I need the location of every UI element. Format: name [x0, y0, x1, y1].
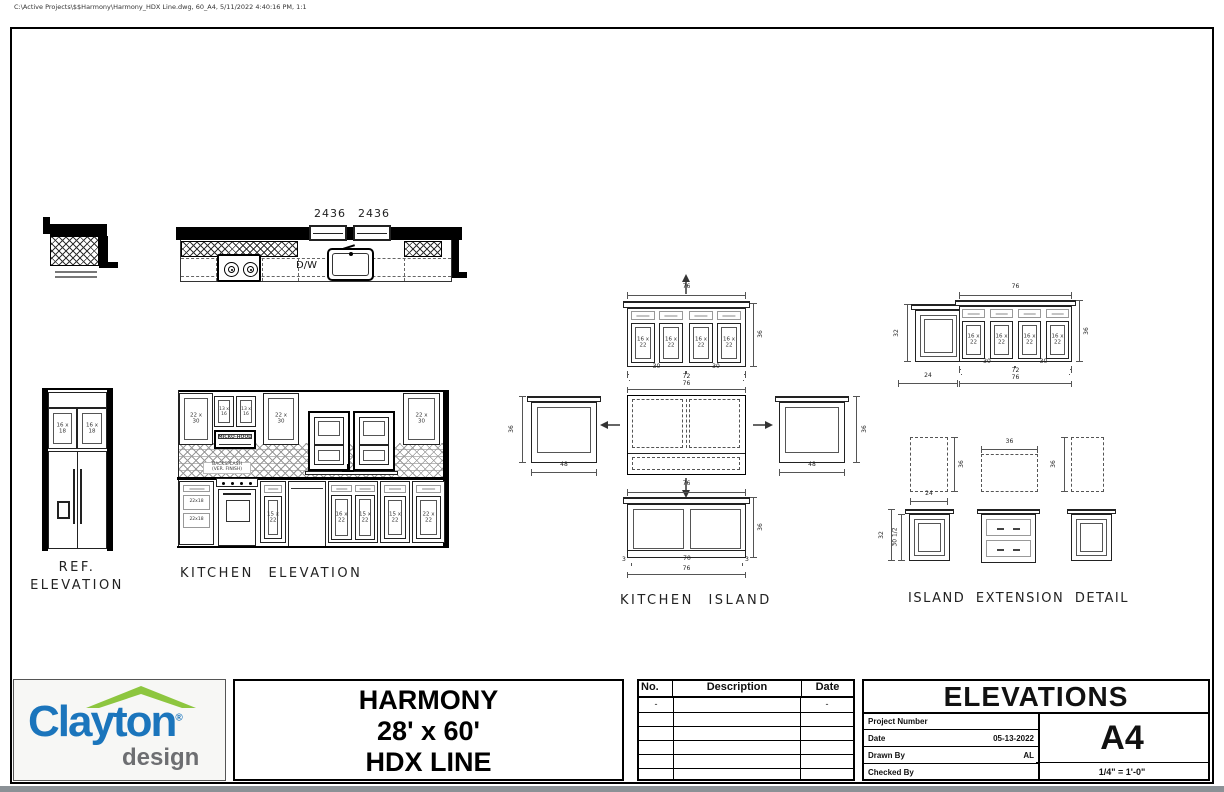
- refrigerator-plan-hatch: [50, 236, 99, 266]
- drawer-size-label: 22x18: [184, 518, 209, 523]
- island-left-side-elevation: [531, 402, 597, 463]
- dim-line: [898, 380, 958, 387]
- kitchen-elevation-title: KITCHEN ELEVATION: [180, 566, 362, 581]
- window-plan: [309, 225, 347, 241]
- faucet: [347, 464, 349, 471]
- dim-label: 76: [959, 375, 1072, 381]
- dim-label: 76: [627, 481, 746, 487]
- checked-by-row: Checked By: [864, 764, 1038, 781]
- window-size-label: 2436: [311, 211, 349, 217]
- cabinet-size-label: 16 x 22: [335, 511, 348, 524]
- dim-label: 76: [627, 566, 746, 572]
- drawer-size-label: 22x18: [184, 500, 209, 505]
- microwave-hood: MICRO-HOOD: [214, 430, 256, 449]
- drawn-by-row: Drawn By AL: [864, 747, 1038, 764]
- cabinet-divider-dashed: [262, 258, 263, 281]
- dim-line: [627, 571, 746, 578]
- kitchen-island-title: KITCHEN ISLAND: [620, 593, 772, 608]
- dim-label: 24: [898, 373, 958, 379]
- dim-line: [910, 498, 948, 505]
- cabinet-size-label: 16 x 22: [695, 337, 708, 350]
- wall-cabinet: 22 x 30: [263, 393, 299, 445]
- checked-by-label: Checked By: [868, 768, 914, 777]
- sheet-number: A4: [1036, 714, 1208, 763]
- micro-hood-label: MICRO-HOOD: [216, 436, 254, 441]
- dim-label: 30 1/2: [893, 527, 899, 546]
- oven-front: [218, 489, 256, 546]
- cabinet-size-label: 16 x 22: [1051, 334, 1064, 347]
- cabinet-hatch-plan: [404, 241, 442, 257]
- island-countertop: [623, 301, 750, 308]
- window-plan: [353, 225, 391, 241]
- extension-plan-dashed: [981, 454, 1038, 492]
- registered-mark: ®: [175, 712, 182, 723]
- cabinet-size-label: 15 x 22: [359, 511, 372, 524]
- dim-line: [531, 469, 597, 476]
- ref-elevation-title-line2: ELEVATION: [18, 578, 136, 593]
- cabinet-size-label: 16 x 22: [1023, 334, 1036, 347]
- cabinet-door: 16 x 22: [990, 321, 1013, 359]
- wall-cabinet: 16 x 18: [48, 408, 77, 449]
- page-bottom-strip: [0, 786, 1224, 792]
- cabinet-door: 16 x 22: [689, 323, 713, 363]
- cabinet-size-label: 16 x 18: [56, 422, 69, 435]
- dim-label: 36: [758, 330, 764, 338]
- cabinet-door: 16 x 22: [659, 323, 683, 363]
- date-row: Date 05-13-2022: [864, 730, 1038, 747]
- dim-label: 36: [758, 523, 764, 531]
- revision-col-date: Date: [801, 681, 853, 696]
- wall-section: [107, 388, 113, 551]
- dim-line: [959, 380, 1072, 387]
- cabinet-size-label: 22 x 30: [415, 413, 428, 426]
- wall-cabinet: 22 x 30: [179, 393, 213, 445]
- base-cabinet: 15 x 22: [260, 481, 286, 543]
- dim-label: 36: [862, 425, 868, 433]
- dim-line: [519, 396, 526, 463]
- dim-label: 30: [1015, 359, 1072, 365]
- dim-label: 70: [631, 556, 743, 562]
- cabinet-size-label: 16 x 22: [967, 334, 980, 347]
- revision-row1-date: -: [801, 699, 853, 709]
- drawer-front: [659, 311, 683, 320]
- dishwasher-label: D/W: [296, 260, 317, 271]
- dim-label: 30: [627, 364, 686, 370]
- drawer-front: [990, 309, 1013, 318]
- dim-label: 36: [1051, 460, 1057, 468]
- ceiling-line: [48, 388, 107, 390]
- cooktop: [216, 478, 258, 487]
- cabinet-size-label: 13 x 16: [219, 406, 230, 416]
- revision-row1-no: -: [639, 699, 673, 709]
- wall-segment: [43, 217, 50, 234]
- arrow-right-icon: [753, 419, 773, 431]
- door-swing-line: [55, 271, 97, 273]
- drawer-front: [962, 309, 985, 318]
- drawer-front: [331, 485, 352, 492]
- model-size: 28' x 60': [235, 716, 622, 747]
- cabinet-size-label: 16 x 22: [637, 337, 650, 350]
- drawn-by-label: Drawn By: [868, 751, 905, 763]
- backsplash-note-line2: (VER. FINISH): [212, 467, 242, 472]
- drawer-front: [1018, 309, 1041, 318]
- drawer-front: [1046, 309, 1069, 318]
- dim-label: 36: [509, 425, 515, 433]
- arrow-up-icon: [680, 274, 692, 294]
- dim-label: 72: [629, 374, 744, 380]
- cabinet-door: 16 x 22: [962, 321, 985, 359]
- cabinet-size-label: 16 x 22: [723, 337, 736, 350]
- dim-label: 48: [531, 462, 597, 468]
- soffit: [48, 392, 107, 408]
- dim-label: 32: [879, 531, 885, 539]
- dim-line: [627, 386, 746, 393]
- cabinet-size-label: 13 x 16: [241, 406, 252, 416]
- cabinet-size-label: 22 x 30: [275, 413, 288, 426]
- wall-cabinet: 13 x 16: [236, 396, 256, 427]
- table-rule: [639, 740, 853, 741]
- cabinet-divider-dashed: [404, 258, 405, 281]
- cabinet-size-label: 16 x 18: [86, 422, 99, 435]
- table-rule: [639, 712, 853, 713]
- door-swing-line: [55, 276, 97, 278]
- extension-plan-dashed: [1071, 437, 1104, 492]
- table-rule: [639, 768, 853, 769]
- logo-box: Clayton® design: [13, 679, 226, 781]
- dim-line: [853, 396, 860, 463]
- cabinet-size-label: 15 x 22: [389, 511, 402, 524]
- dim-label: 30: [959, 359, 1015, 365]
- cabinet-door: 16 x 22: [631, 323, 655, 363]
- end-cabinet-elevation: [915, 310, 962, 362]
- table-rule: [673, 698, 674, 779]
- drawer-front: [631, 311, 655, 320]
- window: [308, 411, 350, 471]
- dim-label: 76: [627, 381, 746, 387]
- island-back-elevation: [627, 504, 746, 558]
- model-line: HDX LINE: [235, 747, 622, 778]
- cabinet-door: 16 x 22: [331, 495, 352, 540]
- sheet-info-block: ELEVATIONS Project Number Date 05-13-202…: [862, 679, 1210, 781]
- cabinet-door: 16 x 22: [1018, 321, 1041, 359]
- ceiling-line: [178, 390, 449, 392]
- model-name: HARMONY: [235, 685, 622, 716]
- ref-elevation-title-line1: REF.: [40, 560, 114, 575]
- dim-label: 30: [686, 364, 746, 370]
- dim-label: 36: [981, 439, 1038, 445]
- date-value: 05-13-2022: [993, 734, 1034, 746]
- extension-door-cabinet: [1071, 514, 1112, 561]
- dim-label: 32: [894, 329, 900, 337]
- model-title-box: HARMONY 28' x 60' HDX LINE: [233, 679, 624, 781]
- cabinet-door: 16 x 22: [1046, 321, 1069, 359]
- extension-door-cabinet: [909, 514, 950, 561]
- cabinet-size-label: 16 x 22: [995, 334, 1008, 347]
- drawer-base-cabinet: 22x18 22x18: [179, 481, 214, 545]
- window-size-label: 2436: [355, 211, 393, 217]
- island-extension-title: ISLAND EXTENSION DETAIL: [908, 591, 1129, 606]
- cabinet-size-label: 22 x 22: [422, 511, 435, 524]
- arrow-left-icon: [600, 419, 620, 431]
- dim-line: [904, 304, 911, 362]
- dim-line: [959, 292, 1072, 299]
- dim-label: 72: [961, 368, 1070, 374]
- backsplash-note: BACKSPLASH (VER. FINISH): [203, 462, 251, 474]
- drawer-front: [355, 485, 375, 492]
- island-right-side-elevation: [779, 402, 845, 463]
- extension-drawer-cabinet: [981, 514, 1036, 563]
- island-plan-view: [627, 395, 746, 475]
- revision-col-no: No.: [639, 681, 673, 696]
- clayton-logo-text: Clayton®: [28, 700, 183, 744]
- wall-segment: [50, 224, 107, 236]
- dim-label: 36: [1084, 327, 1090, 335]
- date-label: Date: [868, 734, 885, 746]
- drawn-by-value: AL: [1023, 751, 1034, 763]
- table-rule: [639, 754, 853, 755]
- design-logo-text: design: [122, 746, 199, 770]
- cabinet-size-label: 15 x 22: [267, 511, 280, 524]
- project-number-label: Project Number: [868, 717, 928, 726]
- revision-col-description: Description: [673, 681, 801, 696]
- sheet-scale: 1/4" = 1'-0": [1036, 763, 1208, 781]
- cabinet-door: 16 x 22: [717, 323, 741, 363]
- dim-line: [1061, 437, 1068, 492]
- dim-line: [627, 489, 746, 496]
- dim-label: 76: [959, 284, 1072, 290]
- dim-label: 48: [779, 462, 845, 468]
- dim-label: 3: [745, 557, 749, 563]
- dishwasher-elevation: [288, 481, 326, 547]
- island-countertop: [623, 497, 750, 504]
- wall-cabinet: 22 x 30: [403, 393, 440, 445]
- dim-line: [981, 446, 1038, 453]
- cabinet-size-label: 22 x 30: [190, 413, 203, 426]
- dim-label: 24: [910, 491, 948, 497]
- project-number-row: Project Number: [864, 714, 1038, 730]
- base-cabinet: 15 x 22: [380, 481, 410, 543]
- revision-table: No. Description Date - -: [637, 679, 855, 781]
- floor-line: [177, 546, 449, 548]
- wall-cabinet: 16 x 18: [77, 408, 107, 449]
- window: [353, 411, 395, 471]
- base-cabinet: 22 x 22: [412, 481, 445, 543]
- ice-dispenser: [57, 501, 70, 519]
- wall-cabinet: 13 x 16: [214, 396, 234, 427]
- table-rule: [639, 726, 853, 727]
- table-rule: [800, 698, 801, 779]
- cabinet-size-label: 16 x 22: [665, 337, 678, 350]
- file-path-header: C:\Active Projects\$$Harmony\Harmony_HDX…: [14, 3, 307, 11]
- refrigerator: [48, 451, 107, 549]
- range-plan: [217, 254, 261, 282]
- dim-label: 3: [622, 557, 626, 563]
- dim-label: 36: [959, 460, 965, 468]
- dim-line: [779, 469, 845, 476]
- drawer-front: [689, 311, 713, 320]
- sheet-title: ELEVATIONS: [864, 681, 1208, 714]
- dim-line: [898, 514, 905, 561]
- wall-segment: [451, 272, 467, 278]
- cabinet-door: 15 x 22: [355, 495, 375, 540]
- drawing-sheet-page: C:\Active Projects\$$Harmony\Harmony_HDX…: [0, 0, 1224, 792]
- drawer-front: [717, 311, 741, 320]
- sink-plan: [327, 248, 374, 281]
- wall-segment: [99, 262, 118, 268]
- extension-plan-dashed: [910, 437, 948, 492]
